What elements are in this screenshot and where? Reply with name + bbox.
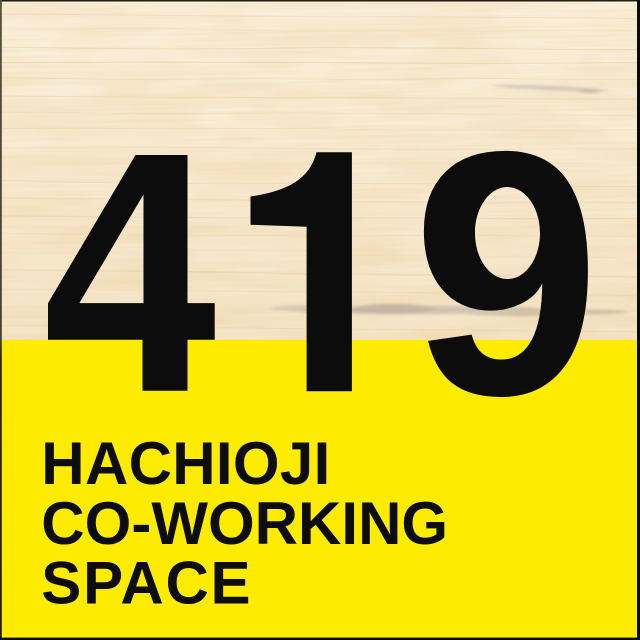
svg-text:CO-WORKING: CO-WORKING: [41, 490, 448, 557]
svg-text:HACHIOJI: HACHIOJI: [41, 430, 330, 497]
svg-text:SPACE: SPACE: [41, 550, 252, 617]
